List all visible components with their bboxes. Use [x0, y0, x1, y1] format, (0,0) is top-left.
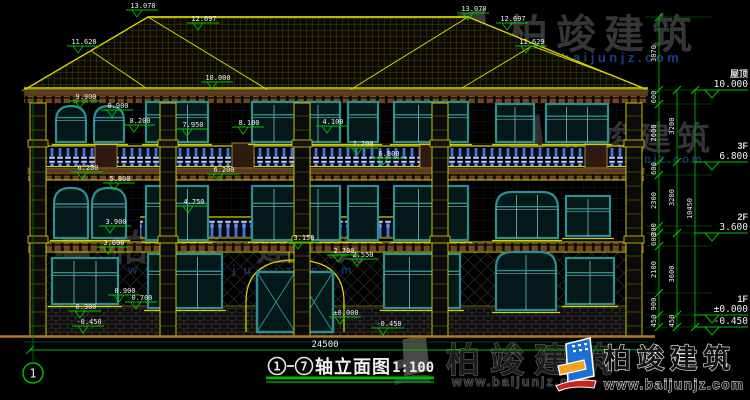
elevation-marker-value: -0.450	[76, 318, 101, 326]
window	[390, 102, 472, 145]
eave-fascia	[24, 90, 648, 96]
title-underline-2	[266, 382, 434, 383]
elevation-marker-value: 7.950	[182, 121, 203, 129]
title-scale: 1:100	[392, 360, 434, 376]
pilaster	[292, 103, 312, 336]
title-text: 轴立面图	[315, 356, 391, 377]
dimension-value: 3200	[668, 118, 676, 135]
building-elevation	[0, 17, 655, 342]
floor-marker-label: 1F	[737, 294, 748, 304]
pilaster	[624, 103, 644, 336]
floor-marker-elevation: 10.000	[714, 79, 749, 90]
dimension-value: 10450	[686, 198, 694, 219]
site-logo-url: www.baijunjz.com	[603, 377, 745, 392]
title-underline	[266, 377, 434, 380]
balustrade-3f	[34, 143, 640, 168]
elevation-marker-value: 12.697	[500, 15, 525, 23]
floor-marker-elevation: 6.800	[719, 151, 748, 162]
elevation-marker-value: 11.628	[71, 38, 96, 46]
dimension-value: 600	[650, 162, 658, 175]
title-axis-to: 7	[300, 360, 307, 374]
floor-marker: 屋顶10.000	[694, 69, 748, 98]
window	[380, 254, 464, 311]
floor-marker-elevation: -0.450	[714, 316, 749, 327]
dimension-value: 3200	[668, 189, 676, 206]
elevation-marker-value: 11.629	[519, 38, 544, 46]
drawing-title: 1 7 轴立面图 1:100	[266, 356, 434, 383]
elevation-marker-value: 8.100	[238, 119, 259, 127]
dimension-value: 3070	[650, 45, 658, 62]
pilaster	[158, 103, 178, 336]
elevation-marker-value: 4.100	[322, 118, 343, 126]
elevation-marker-value: 0.700	[131, 294, 152, 302]
elevation-marker-value: 2.700	[333, 247, 354, 255]
floor-marker: 2F3.600	[694, 212, 748, 241]
pilaster	[28, 103, 48, 336]
elevation-marker-value: 4.750	[183, 198, 204, 206]
window	[390, 186, 472, 243]
pilaster	[430, 103, 450, 336]
elevation-marker-value: 6.800	[378, 150, 399, 158]
floor-marker: -0.450	[694, 316, 748, 335]
elevation-marker-value: 8.200	[129, 117, 150, 125]
elevation-marker-value: ±0.000	[333, 309, 358, 317]
dimension-value: 600	[650, 233, 658, 246]
window	[48, 258, 122, 307]
window	[52, 106, 90, 145]
floor-marker-elevation: ±0.000	[714, 304, 749, 315]
bottom-dimension-value: 24500	[311, 340, 338, 350]
floor-marker-elevation: 3.600	[719, 222, 748, 233]
elevation-marker-value: 3.150	[293, 234, 314, 242]
dimension-value: 2100	[650, 261, 658, 278]
elevation-marker-value: 13.070	[130, 2, 155, 10]
axis-bubble-number: 1	[29, 367, 36, 381]
window	[50, 188, 92, 241]
window	[344, 186, 382, 243]
cad-viewer-canvas: 柏竣建筑 www.baijunjz.com 柏竣建筑 www.baijunjz.…	[0, 0, 750, 400]
window	[542, 104, 612, 145]
elevation-marker-value: 0.300	[75, 303, 96, 311]
window	[562, 258, 618, 307]
window	[562, 196, 614, 239]
elevation-marker-value: 2.550	[352, 251, 373, 259]
elevation-marker-value: 12.697	[191, 15, 216, 23]
window	[344, 102, 382, 145]
elevation-marker-value: 6.200	[213, 166, 234, 174]
dimension-value: 450	[650, 315, 658, 328]
dimension-value: 450	[668, 315, 676, 328]
elevation-marker-value: 5.800	[109, 175, 130, 183]
elevation-marker-value: 6.200	[77, 164, 98, 172]
title-axis-from: 1	[273, 360, 280, 374]
dimension-value: 600	[650, 91, 658, 104]
elevation-marker-value: 8.900	[107, 102, 128, 110]
floor-elevation-markers: 屋顶10.0003F6.8002F3.6001F±0.000-0.450	[694, 69, 748, 335]
elevation-marker-value: 13.070	[461, 5, 486, 13]
window	[142, 186, 212, 243]
window	[492, 192, 562, 241]
elevation-marker-value: 7.200	[352, 140, 373, 148]
window	[492, 104, 538, 145]
elevation-marker-value: -0.450	[376, 320, 401, 328]
elevation-marker-value: 9.900	[75, 93, 96, 101]
dimension-value: 2300	[650, 192, 658, 209]
elevation-marker: 13.070	[126, 2, 158, 17]
elevation-marker-value: 3.600	[103, 239, 124, 247]
window	[492, 252, 560, 313]
site-logo: 柏竣建筑 www.baijunjz.com	[556, 338, 745, 392]
floor-marker-label: 2F	[737, 212, 748, 222]
floor-marker-label: 3F	[737, 141, 748, 151]
dimension-value: 2600	[650, 125, 658, 142]
window	[88, 188, 130, 241]
dimension-value: 900	[650, 298, 658, 311]
elevation-drawing: 柏竣建筑 www.baijunjz.com 柏竣建筑 www.baijunjz.…	[0, 0, 750, 400]
balustrade-pedestal	[232, 143, 254, 168]
dimension-value: 3600	[668, 266, 676, 283]
elevation-marker-value: 10.000	[205, 74, 230, 82]
balustrade-pedestal	[585, 143, 607, 168]
site-logo-brand: 柏竣建筑	[604, 343, 736, 374]
elevation-marker-value: 3.900	[105, 218, 126, 226]
window	[90, 106, 128, 145]
floor-marker-label: 屋顶	[730, 69, 748, 79]
